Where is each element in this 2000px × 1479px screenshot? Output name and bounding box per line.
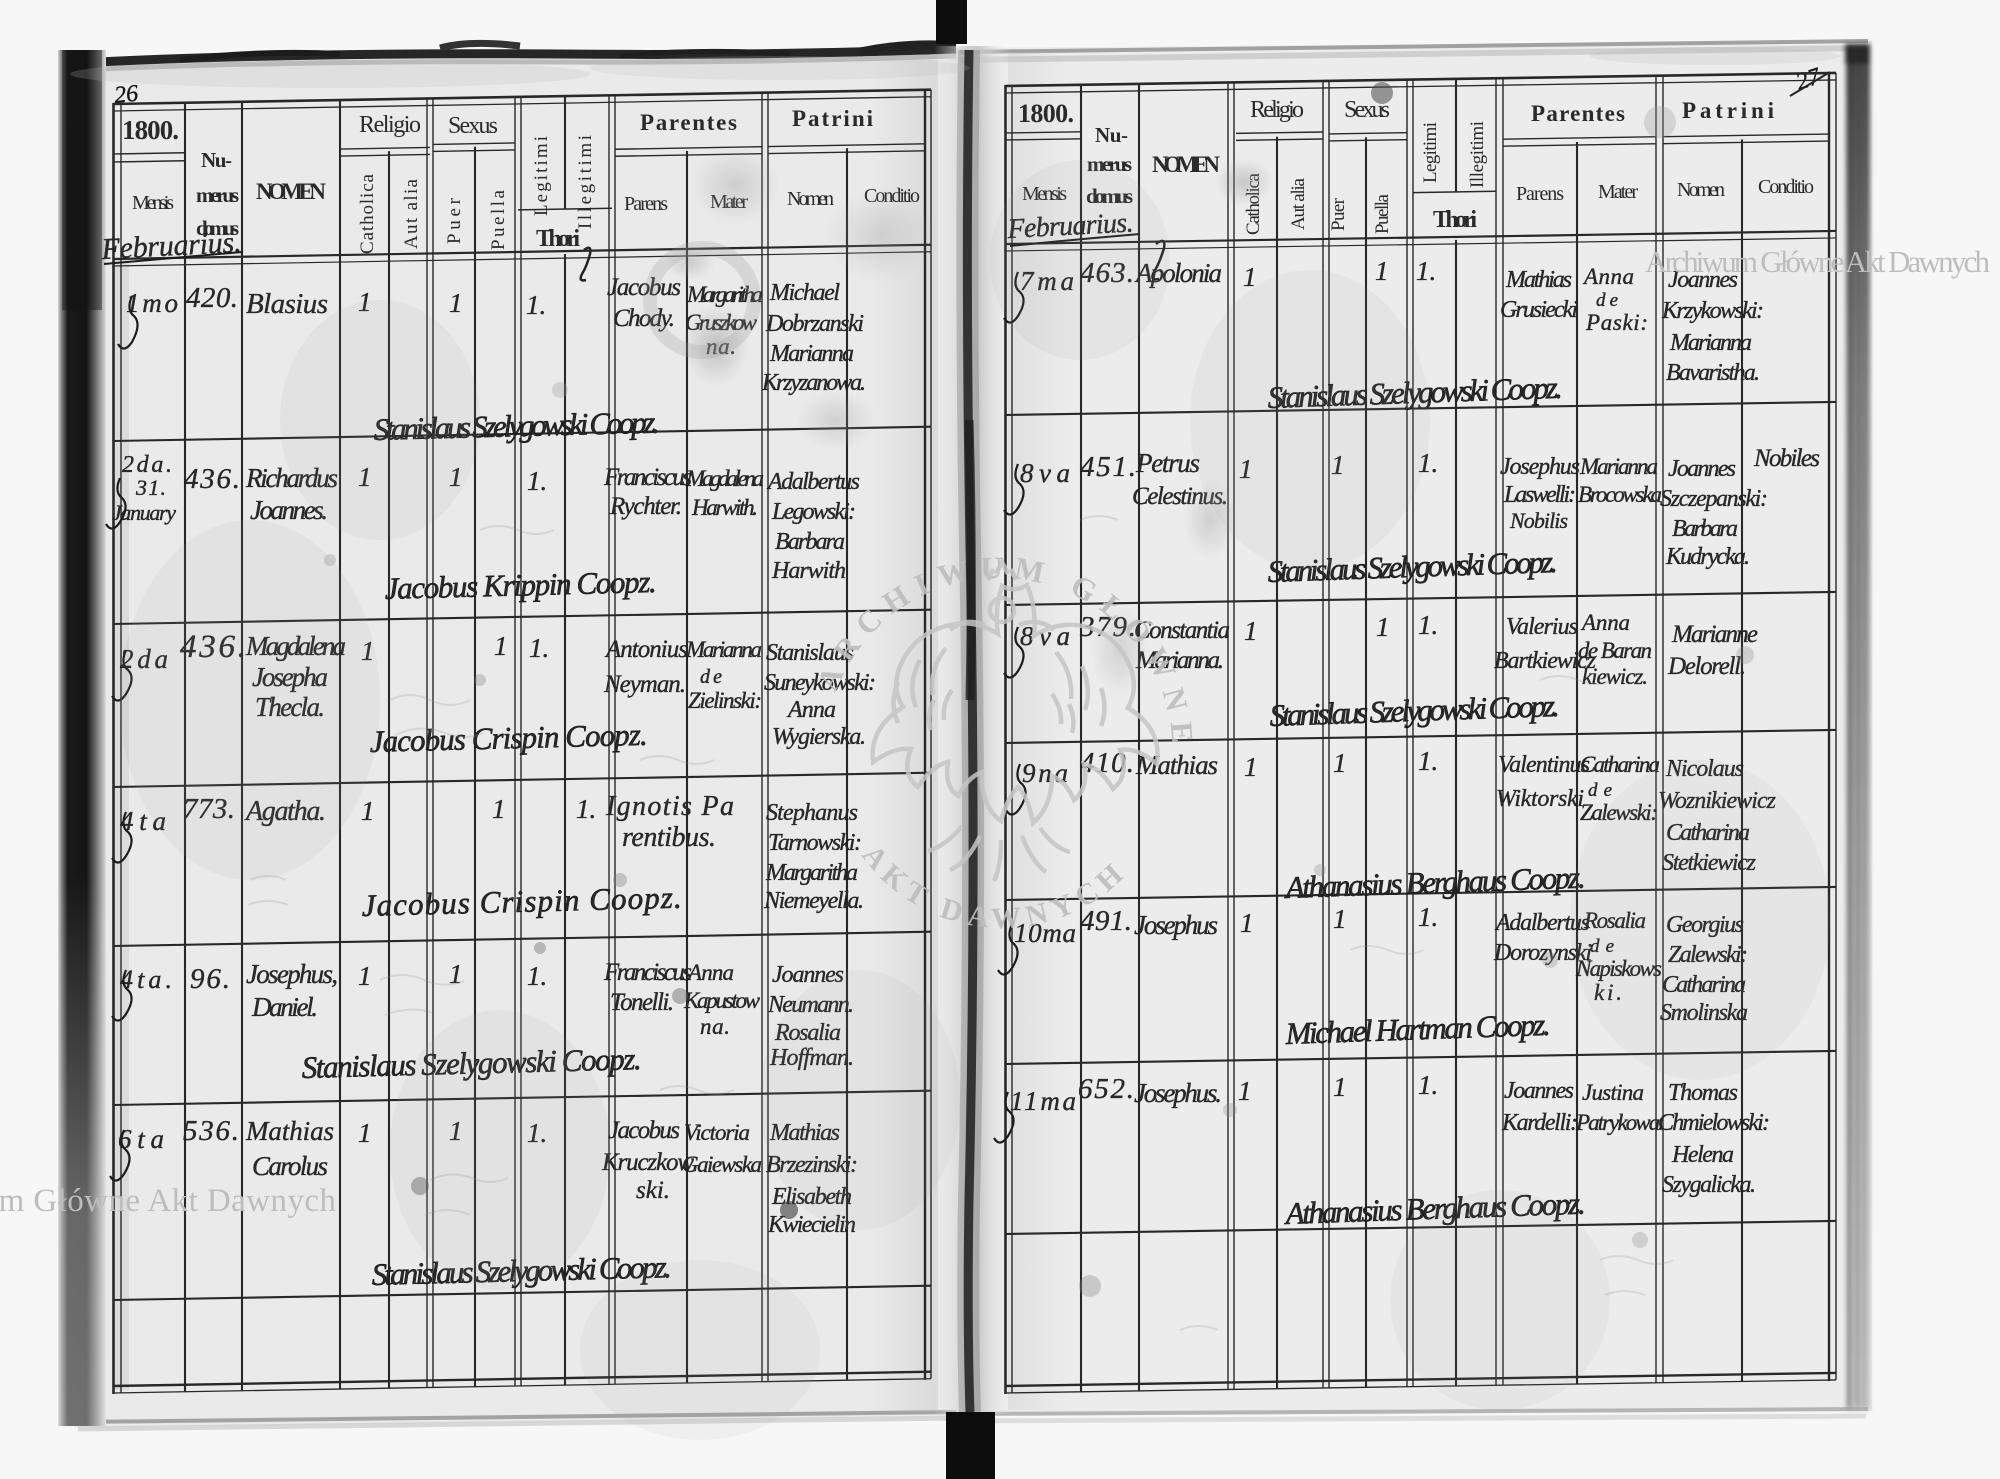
svg-text:11ma: 11ma bbox=[1010, 1086, 1076, 1116]
svg-text:Puella: Puella bbox=[488, 189, 509, 250]
svg-text:Magdalena: Magdalena bbox=[685, 466, 764, 491]
svg-text:Harwith: Harwith bbox=[771, 558, 846, 584]
svg-text:Grusiecki: Grusiecki bbox=[1500, 297, 1578, 323]
svg-text:Religio: Religio bbox=[1250, 97, 1304, 123]
svg-text:1: 1 bbox=[1375, 256, 1389, 286]
svg-text:Nu-: Nu- bbox=[1095, 123, 1128, 147]
svg-text:Valentinus: Valentinus bbox=[1498, 752, 1590, 778]
svg-text:1: 1 bbox=[1333, 904, 1347, 934]
svg-text:Neyman.: Neyman. bbox=[603, 671, 686, 698]
svg-text:Parentes: Parentes bbox=[640, 110, 740, 135]
svg-text:Religio: Religio bbox=[359, 112, 421, 138]
svg-text:Parens: Parens bbox=[1516, 183, 1564, 205]
svg-text:Chmielowski:: Chmielowski: bbox=[1658, 1110, 1770, 1136]
svg-text:Patrykowa.: Patrykowa. bbox=[1575, 1110, 1664, 1135]
svg-text:Jacobus: Jacobus bbox=[608, 1117, 680, 1144]
svg-text:Delorell.: Delorell. bbox=[1667, 653, 1746, 680]
svg-text:1: 1 bbox=[492, 794, 506, 824]
svg-text:1mo: 1mo bbox=[126, 288, 178, 318]
svg-text:Marianna: Marianna bbox=[1579, 454, 1658, 479]
svg-text:Margaritha: Margaritha bbox=[765, 860, 858, 886]
svg-text:Puer: Puer bbox=[444, 197, 465, 244]
svg-text:Krzykowski:: Krzykowski: bbox=[1661, 298, 1764, 324]
svg-text:Patrini: Patrini bbox=[1682, 98, 1777, 123]
svg-text:1: 1 bbox=[1376, 612, 1390, 642]
svg-text:Niemeyella.: Niemeyella. bbox=[763, 888, 864, 914]
svg-text:1.: 1. bbox=[527, 466, 547, 496]
svg-text:Anna: Anna bbox=[786, 697, 836, 723]
svg-text:ski.: ski. bbox=[636, 1177, 670, 1204]
svg-text:1: 1 bbox=[1244, 752, 1258, 782]
svg-text:1: 1 bbox=[1333, 1072, 1347, 1102]
svg-text:Puella: Puella bbox=[1372, 193, 1393, 234]
svg-text:1800.: 1800. bbox=[1018, 99, 1074, 128]
svg-text:Petrus: Petrus bbox=[1135, 448, 1200, 478]
svg-text:Dobrzanski: Dobrzanski bbox=[765, 311, 864, 337]
svg-text:Illegitimi: Illegitimi bbox=[575, 135, 596, 229]
svg-text:Aut alia: Aut alia bbox=[1288, 177, 1309, 230]
svg-text:Archiwum Główne Akt Dawnych: Archiwum Główne Akt Dawnych bbox=[0, 1183, 337, 1219]
svg-text:kiewicz.: kiewicz. bbox=[1582, 664, 1648, 689]
svg-text:1: 1 bbox=[358, 961, 372, 991]
svg-text:96.: 96. bbox=[190, 963, 230, 995]
svg-text:Jacobus Krippin Coopz.: Jacobus Krippin Coopz. bbox=[384, 564, 657, 606]
svg-text:Illegitimi: Illegitimi bbox=[1467, 121, 1488, 188]
svg-text:1.: 1. bbox=[1418, 746, 1438, 776]
svg-text:31.: 31. bbox=[135, 475, 166, 500]
svg-text:Zielinski:: Zielinski: bbox=[688, 688, 762, 713]
svg-text:Nomen: Nomen bbox=[787, 188, 834, 210]
svg-text:Catharina: Catharina bbox=[1580, 752, 1660, 777]
svg-text:Tarnowski:: Tarnowski: bbox=[768, 830, 862, 856]
svg-text:Josephus,: Josephus, bbox=[246, 959, 338, 989]
svg-text:1: 1 bbox=[358, 1118, 372, 1148]
svg-text:Jacobus Crispin Coopz.: Jacobus Crispin Coopz. bbox=[369, 717, 648, 759]
svg-text:Marianna: Marianna bbox=[1669, 330, 1752, 356]
svg-text:January: January bbox=[112, 500, 176, 525]
svg-text:Catholica: Catholica bbox=[357, 173, 378, 254]
svg-text:Justina: Justina bbox=[1582, 1080, 1644, 1105]
svg-text:Marianna: Marianna bbox=[685, 637, 762, 662]
svg-text:Ignotis Pa: Ignotis Pa bbox=[605, 791, 734, 822]
svg-text:Mathias: Mathias bbox=[245, 1116, 334, 1146]
svg-text:Nobilis: Nobilis bbox=[1509, 508, 1568, 533]
svg-text:Joannes: Joannes bbox=[1504, 1078, 1574, 1104]
svg-text:Thomas: Thomas bbox=[1668, 1080, 1738, 1106]
svg-text:Nu-: Nu- bbox=[201, 148, 232, 172]
svg-text:de Baran: de Baran bbox=[1578, 638, 1652, 663]
svg-text:Mensis: Mensis bbox=[132, 192, 174, 214]
svg-text:Harwith.: Harwith. bbox=[691, 495, 758, 520]
svg-text:Brocowska: Brocowska bbox=[1578, 482, 1662, 507]
svg-text:Puer: Puer bbox=[1328, 197, 1349, 231]
svg-text:Archiwum Główne Akt Dawnych: Archiwum Główne Akt Dawnych bbox=[1645, 244, 1991, 279]
svg-text:1.: 1. bbox=[1416, 256, 1436, 286]
svg-text:Antonius: Antonius bbox=[604, 636, 688, 663]
svg-text:Legitimi: Legitimi bbox=[1420, 122, 1441, 183]
svg-text:Blasius: Blasius bbox=[246, 288, 328, 320]
svg-text:Conditio: Conditio bbox=[1758, 176, 1814, 198]
svg-text:1: 1 bbox=[1238, 1076, 1252, 1106]
svg-text:Szczepanski:: Szczepanski: bbox=[1660, 486, 1768, 512]
svg-text:1: 1 bbox=[361, 796, 375, 826]
svg-text:Victoria: Victoria bbox=[684, 1120, 750, 1145]
svg-text:1.: 1. bbox=[576, 794, 596, 824]
svg-text:Anna: Anna bbox=[1582, 264, 1634, 289]
svg-text:NOMEN: NOMEN bbox=[256, 179, 326, 204]
svg-text:Legowski:: Legowski: bbox=[771, 499, 856, 525]
svg-text:Daniel.: Daniel. bbox=[251, 992, 318, 1022]
svg-text:Barbara: Barbara bbox=[775, 529, 845, 555]
svg-text:Parens: Parens bbox=[624, 193, 668, 215]
svg-text:Helena: Helena bbox=[1671, 1142, 1734, 1168]
svg-text:Anna: Anna bbox=[1580, 610, 1630, 635]
svg-text:1.: 1. bbox=[1418, 1070, 1438, 1100]
svg-text:Franciscus: Franciscus bbox=[603, 464, 692, 491]
svg-text:1.: 1. bbox=[527, 961, 547, 991]
svg-text:Nomen: Nomen bbox=[1677, 179, 1725, 201]
svg-text:Stephanus: Stephanus bbox=[766, 800, 858, 826]
svg-text:Kapustow: Kapustow bbox=[683, 988, 761, 1013]
svg-text:na.: na. bbox=[700, 1014, 730, 1039]
svg-text:1.: 1. bbox=[1418, 902, 1438, 932]
svg-text:Aut alia: Aut alia bbox=[401, 178, 422, 249]
svg-text:Mater: Mater bbox=[1598, 181, 1638, 203]
svg-text:merus: merus bbox=[196, 183, 239, 207]
svg-text:Josephus: Josephus bbox=[1134, 910, 1218, 940]
svg-text:Josephus: Josephus bbox=[1500, 454, 1580, 480]
svg-text:Josephus.: Josephus. bbox=[1134, 1078, 1222, 1108]
svg-text:1: 1 bbox=[1244, 616, 1258, 646]
svg-text:Parentes: Parentes bbox=[1531, 101, 1628, 126]
svg-text:Kardelli:: Kardelli: bbox=[1501, 1110, 1578, 1136]
svg-text:1: 1 bbox=[1333, 748, 1347, 778]
svg-text:Sexus: Sexus bbox=[448, 113, 498, 139]
svg-text:Marianna: Marianna bbox=[769, 341, 854, 367]
svg-text:Laswelli:: Laswelli: bbox=[1503, 482, 1576, 508]
svg-text:Thori: Thori bbox=[536, 226, 580, 252]
svg-text:Joannes: Joannes bbox=[1668, 456, 1736, 482]
svg-text:1: 1 bbox=[494, 631, 508, 661]
svg-text:Thori: Thori bbox=[1433, 207, 1477, 233]
svg-text:Franciscus: Franciscus bbox=[603, 959, 692, 986]
svg-text:Wygierska.: Wygierska. bbox=[772, 724, 866, 750]
svg-text:1.: 1. bbox=[529, 633, 549, 663]
svg-text:Kudrycka.: Kudrycka. bbox=[1665, 544, 1750, 570]
svg-text:Patrini: Patrini bbox=[792, 106, 876, 131]
svg-text:Rychter.: Rychter. bbox=[609, 493, 682, 520]
svg-text:Valerius: Valerius bbox=[1506, 614, 1578, 640]
svg-text:Bavaristha.: Bavaristha. bbox=[1666, 360, 1760, 386]
svg-text:Nobiles: Nobiles bbox=[1753, 445, 1820, 472]
svg-text:Adalbertus: Adalbertus bbox=[766, 469, 860, 495]
svg-text:Barbara: Barbara bbox=[1672, 516, 1738, 542]
svg-text:Gaiewska: Gaiewska bbox=[682, 1152, 762, 1177]
svg-text:Kruczkow: Kruczkow bbox=[601, 1149, 694, 1176]
svg-text:NOMEN: NOMEN bbox=[1152, 152, 1220, 177]
svg-text:1.: 1. bbox=[1418, 610, 1438, 640]
svg-text:1: 1 bbox=[449, 288, 463, 318]
svg-text:1: 1 bbox=[1240, 908, 1254, 938]
svg-text:Michael: Michael bbox=[769, 280, 840, 306]
svg-text:Mathias: Mathias bbox=[1505, 267, 1572, 293]
svg-text:1800.: 1800. bbox=[122, 115, 179, 145]
svg-text:Anna: Anna bbox=[686, 960, 734, 985]
svg-text:Marianne: Marianne bbox=[1671, 621, 1758, 648]
svg-text:Tonelli.: Tonelli. bbox=[610, 989, 674, 1016]
svg-text:Szygalicka.: Szygalicka. bbox=[1662, 1172, 1756, 1198]
svg-text:Wiktorski: Wiktorski bbox=[1496, 786, 1584, 812]
svg-text:rentibus.: rentibus. bbox=[622, 822, 716, 853]
svg-text:8va: 8va bbox=[1020, 458, 1070, 488]
svg-text:Paski:: Paski: bbox=[1585, 310, 1648, 335]
svg-text:420.: 420. bbox=[186, 282, 238, 314]
svg-text:1.: 1. bbox=[526, 290, 546, 320]
svg-text:Carolus: Carolus bbox=[252, 1151, 328, 1181]
